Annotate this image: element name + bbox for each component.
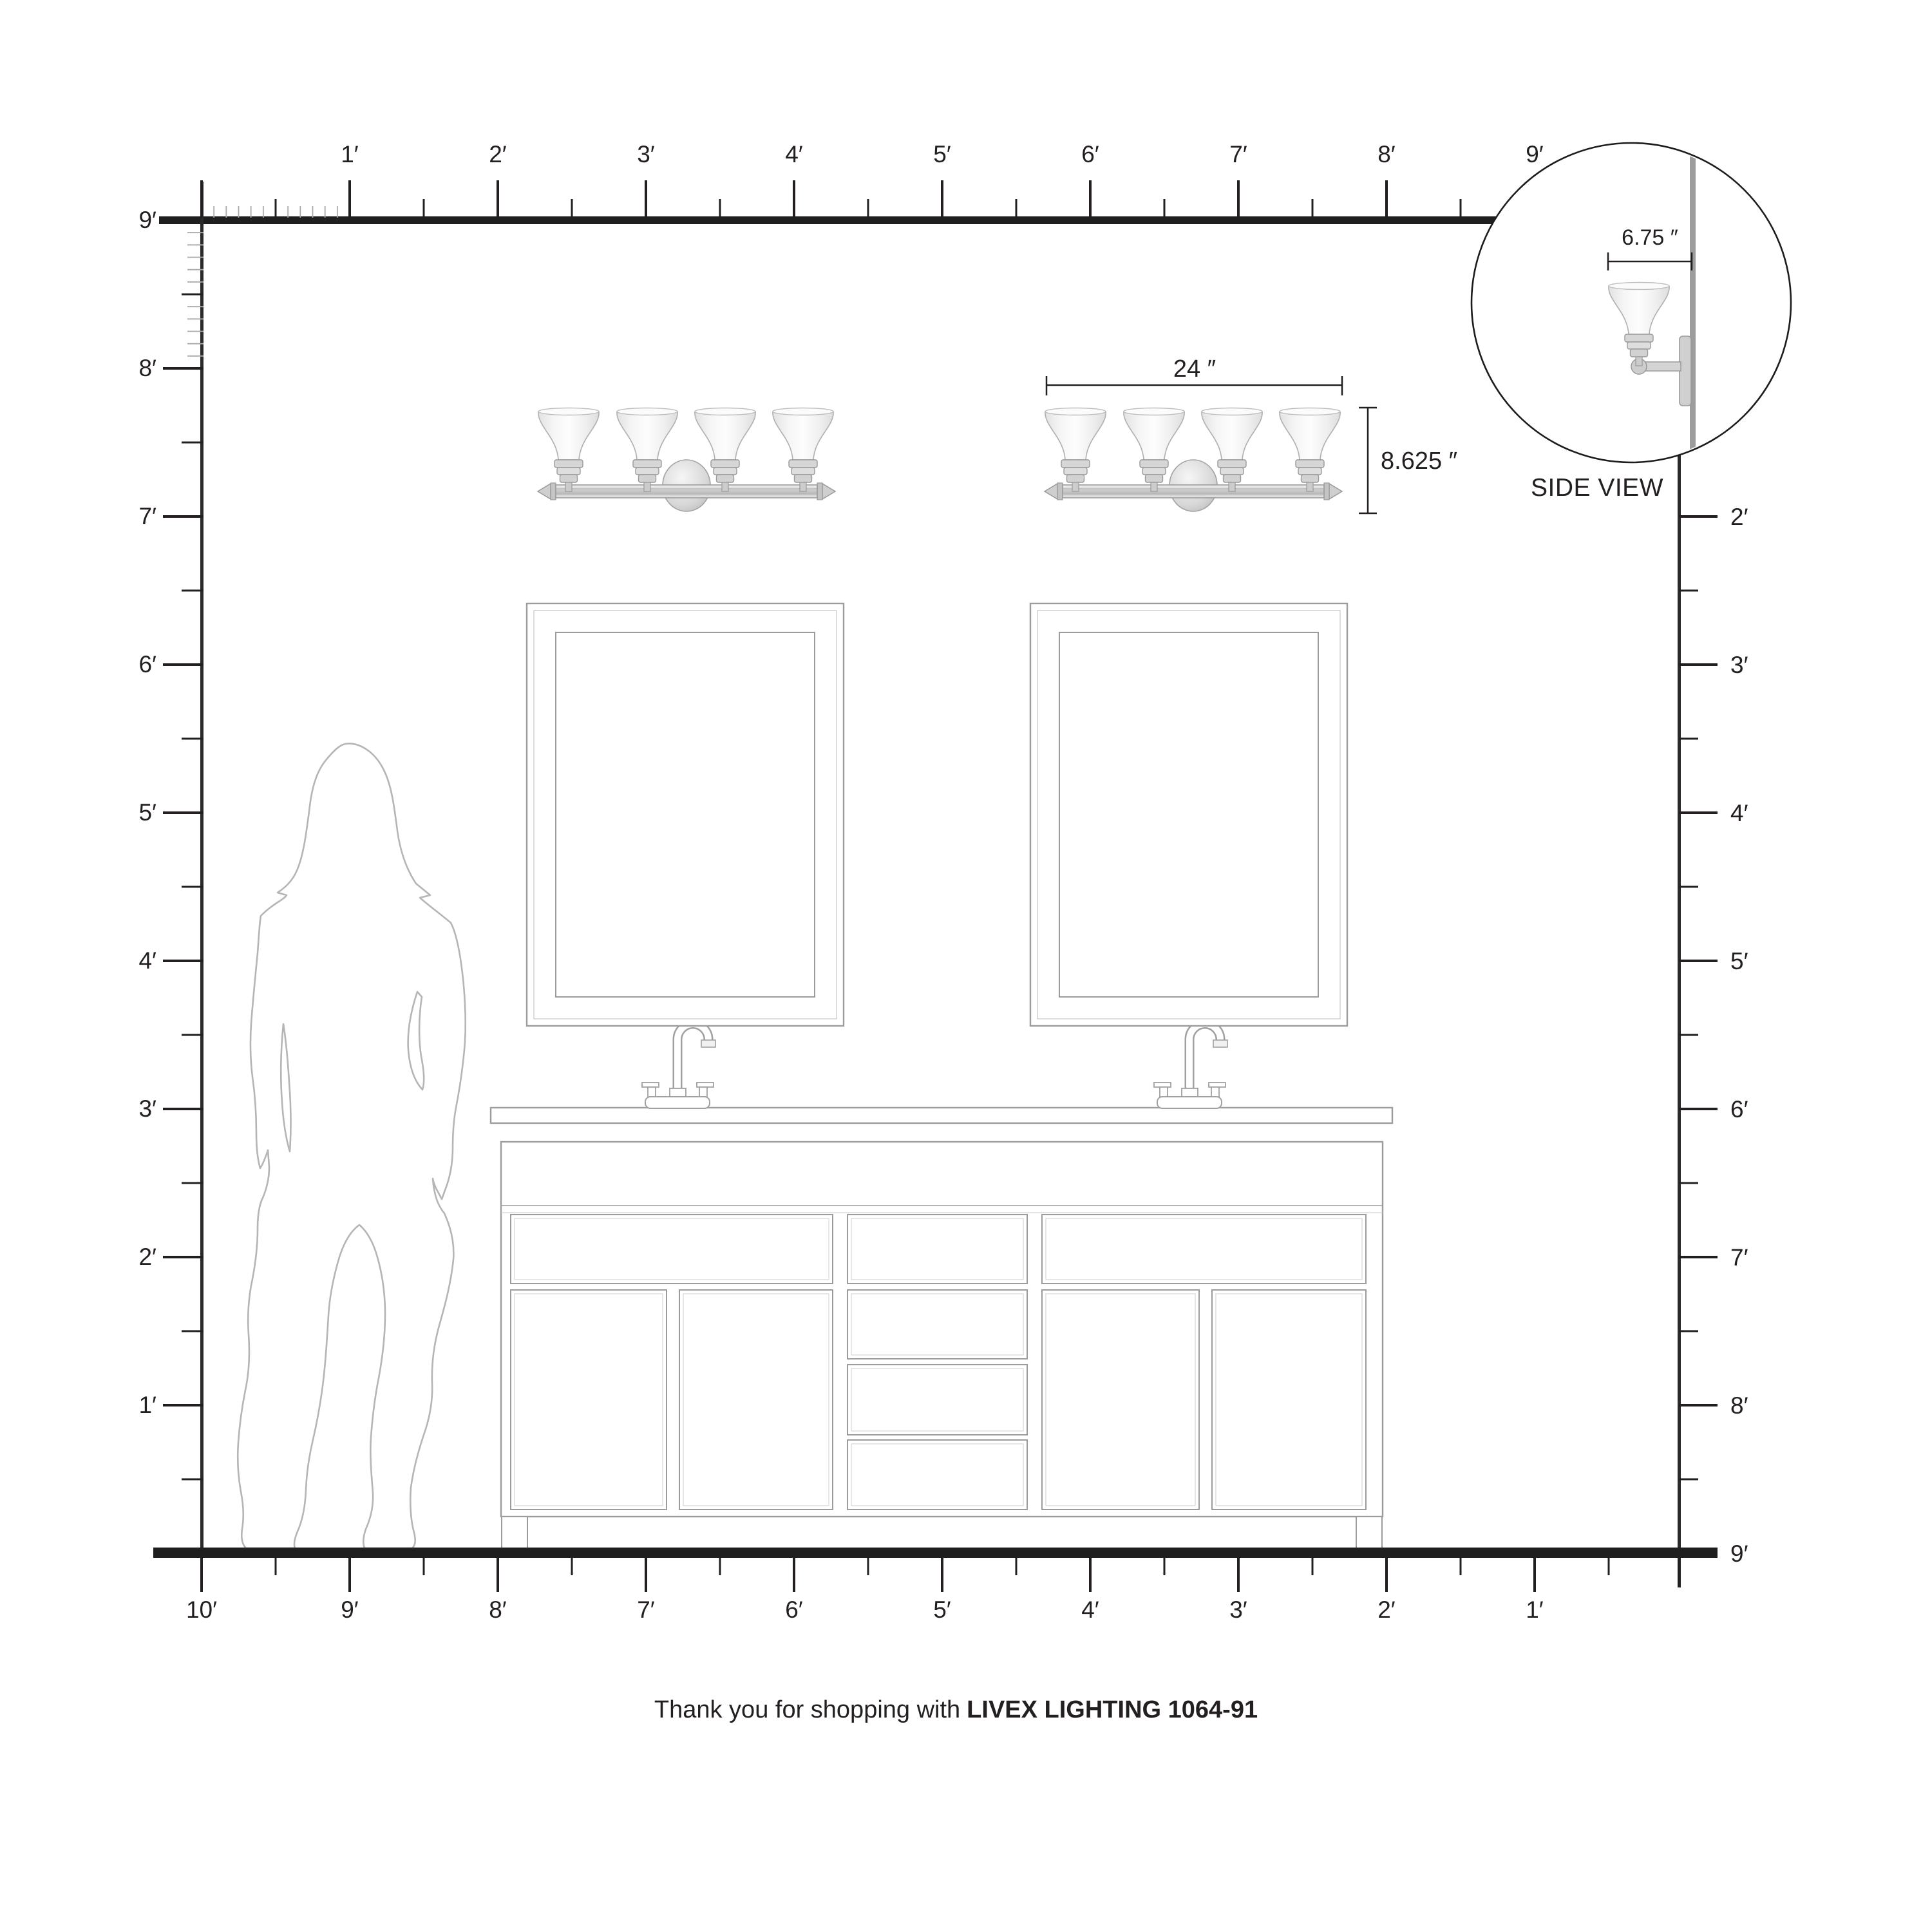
bottom-ruler-label: 1′ — [1526, 1596, 1544, 1623]
faucet-right — [1154, 1024, 1227, 1108]
left-ruler-label: 8′ — [138, 355, 156, 381]
vanity-cabinet — [491, 1108, 1392, 1548]
right-ruler-label: 2′ — [1730, 504, 1748, 530]
finial-left — [1045, 484, 1057, 499]
side-view-label: SIDE VIEW — [1531, 474, 1663, 502]
drawer-front — [847, 1290, 1027, 1359]
footer-note: Thank you for shopping withLIVEX LIGHTIN… — [0, 1696, 1912, 1724]
bottom-ruler-label: 2′ — [1377, 1596, 1396, 1623]
diagram-canvas: 24 ″ 8.625 ″ 1′2′3′4′5′6′7′8′9′ 9′8′7′6′… — [0, 0, 1912, 1932]
right-ruler-label: 4′ — [1730, 800, 1748, 826]
drawer-front — [511, 1215, 833, 1283]
left-ruler: 9′8′7′6′5′4′3′2′1′ — [138, 207, 204, 1479]
left-ruler-label: 3′ — [138, 1095, 156, 1122]
top-ruler-label: 1′ — [341, 141, 359, 167]
top-ruler-label: 5′ — [933, 141, 951, 167]
top-ruler-label: 2′ — [489, 141, 507, 167]
bottom-ruler-label: 9′ — [341, 1596, 359, 1623]
sconce-arm — [1642, 362, 1681, 371]
top-ruler-label: 8′ — [1377, 141, 1396, 167]
fixture-bar — [1063, 485, 1324, 498]
bottom-ruler-label: 4′ — [1081, 1596, 1099, 1623]
left-ruler-label: 5′ — [138, 799, 156, 826]
cabinet-leg — [1356, 1517, 1382, 1548]
top-ruler-label: 3′ — [637, 141, 655, 167]
bottom-ruler-label: 5′ — [933, 1596, 951, 1623]
top-ruler-label: 4′ — [785, 141, 803, 167]
height-dimension — [1359, 408, 1377, 513]
spec-sheet-page: { "footer": { "prefix": "Thank you for s… — [0, 0, 1912, 1932]
drawer-front — [847, 1440, 1027, 1510]
side-view-inset: 6.75 ″ SIDE VIEW — [1472, 142, 1791, 502]
left-ruler-label: 2′ — [138, 1244, 156, 1270]
wall-section — [1690, 142, 1696, 464]
ceiling-line — [159, 216, 1679, 224]
cabinet-door — [1042, 1290, 1199, 1510]
drawer-front — [847, 1365, 1027, 1435]
footer-product-id: LIVEX LIGHTING 1064-91 — [967, 1696, 1258, 1723]
faucet-left — [642, 1024, 715, 1108]
left-ruler-label: 1′ — [138, 1392, 156, 1418]
lamp-shade — [773, 408, 833, 492]
cabinet-door — [679, 1290, 833, 1510]
countertop — [491, 1108, 1392, 1123]
fixture-bar — [556, 485, 817, 498]
bottom-ruler: 10′9′8′7′6′5′4′3′2′1′ — [186, 1558, 1679, 1623]
top-ruler-label: 7′ — [1229, 141, 1247, 167]
bottom-ruler-label: 3′ — [1229, 1596, 1247, 1623]
left-ruler-label: 7′ — [138, 503, 156, 529]
fixture-height-label: 8.625 ″ — [1381, 448, 1457, 475]
left-ruler-label: 9′ — [138, 207, 156, 233]
right-ruler-label: 8′ — [1730, 1392, 1748, 1419]
mirror-left — [527, 603, 844, 1026]
left-ruler-label: 6′ — [138, 651, 156, 677]
person-silhouette — [238, 744, 466, 1548]
right-ruler-label: 3′ — [1730, 652, 1748, 678]
finial-right — [1329, 484, 1342, 499]
drawer-front — [847, 1215, 1027, 1283]
right-ruler-label: 6′ — [1730, 1096, 1748, 1122]
bottom-ruler-label: 10′ — [186, 1596, 217, 1623]
top-ruler-label: 6′ — [1081, 141, 1099, 167]
right-ruler: 2′3′4′5′6′7′8′9′ — [1679, 504, 1748, 1567]
cabinet-door — [1212, 1290, 1366, 1510]
left-ruler-label: 4′ — [138, 947, 156, 974]
vanity-light-right — [1045, 408, 1342, 512]
right-ruler-label: 9′ — [1730, 1540, 1748, 1567]
top-ruler: 1′2′3′4′5′6′7′8′9′ — [202, 141, 1544, 218]
finial-left — [538, 484, 551, 499]
lamp-shade — [1045, 408, 1106, 492]
right-ruler-label: 5′ — [1730, 948, 1748, 974]
bottom-ruler-label: 8′ — [489, 1596, 507, 1623]
left-wall-line — [200, 182, 204, 1548]
right-ruler-label: 7′ — [1730, 1244, 1748, 1271]
cabinet-leg — [502, 1517, 527, 1548]
side-depth-label: 6.75 ″ — [1622, 225, 1678, 250]
lamp-shade — [1280, 408, 1340, 492]
drawer-front — [1042, 1215, 1366, 1283]
floor-line — [153, 1548, 1718, 1558]
mirror-right — [1030, 603, 1347, 1026]
footer-text: Thank you for shopping with — [654, 1696, 960, 1723]
finial-right — [822, 484, 835, 499]
bottom-ruler-label: 6′ — [785, 1596, 803, 1623]
lamp-shade — [538, 408, 599, 492]
vanity-light-left — [538, 408, 835, 512]
cabinet-door — [511, 1290, 667, 1510]
bottom-ruler-label: 7′ — [637, 1596, 655, 1623]
fixture-width-label: 24 ″ — [1173, 355, 1216, 383]
top-ruler-label: 9′ — [1526, 141, 1544, 167]
